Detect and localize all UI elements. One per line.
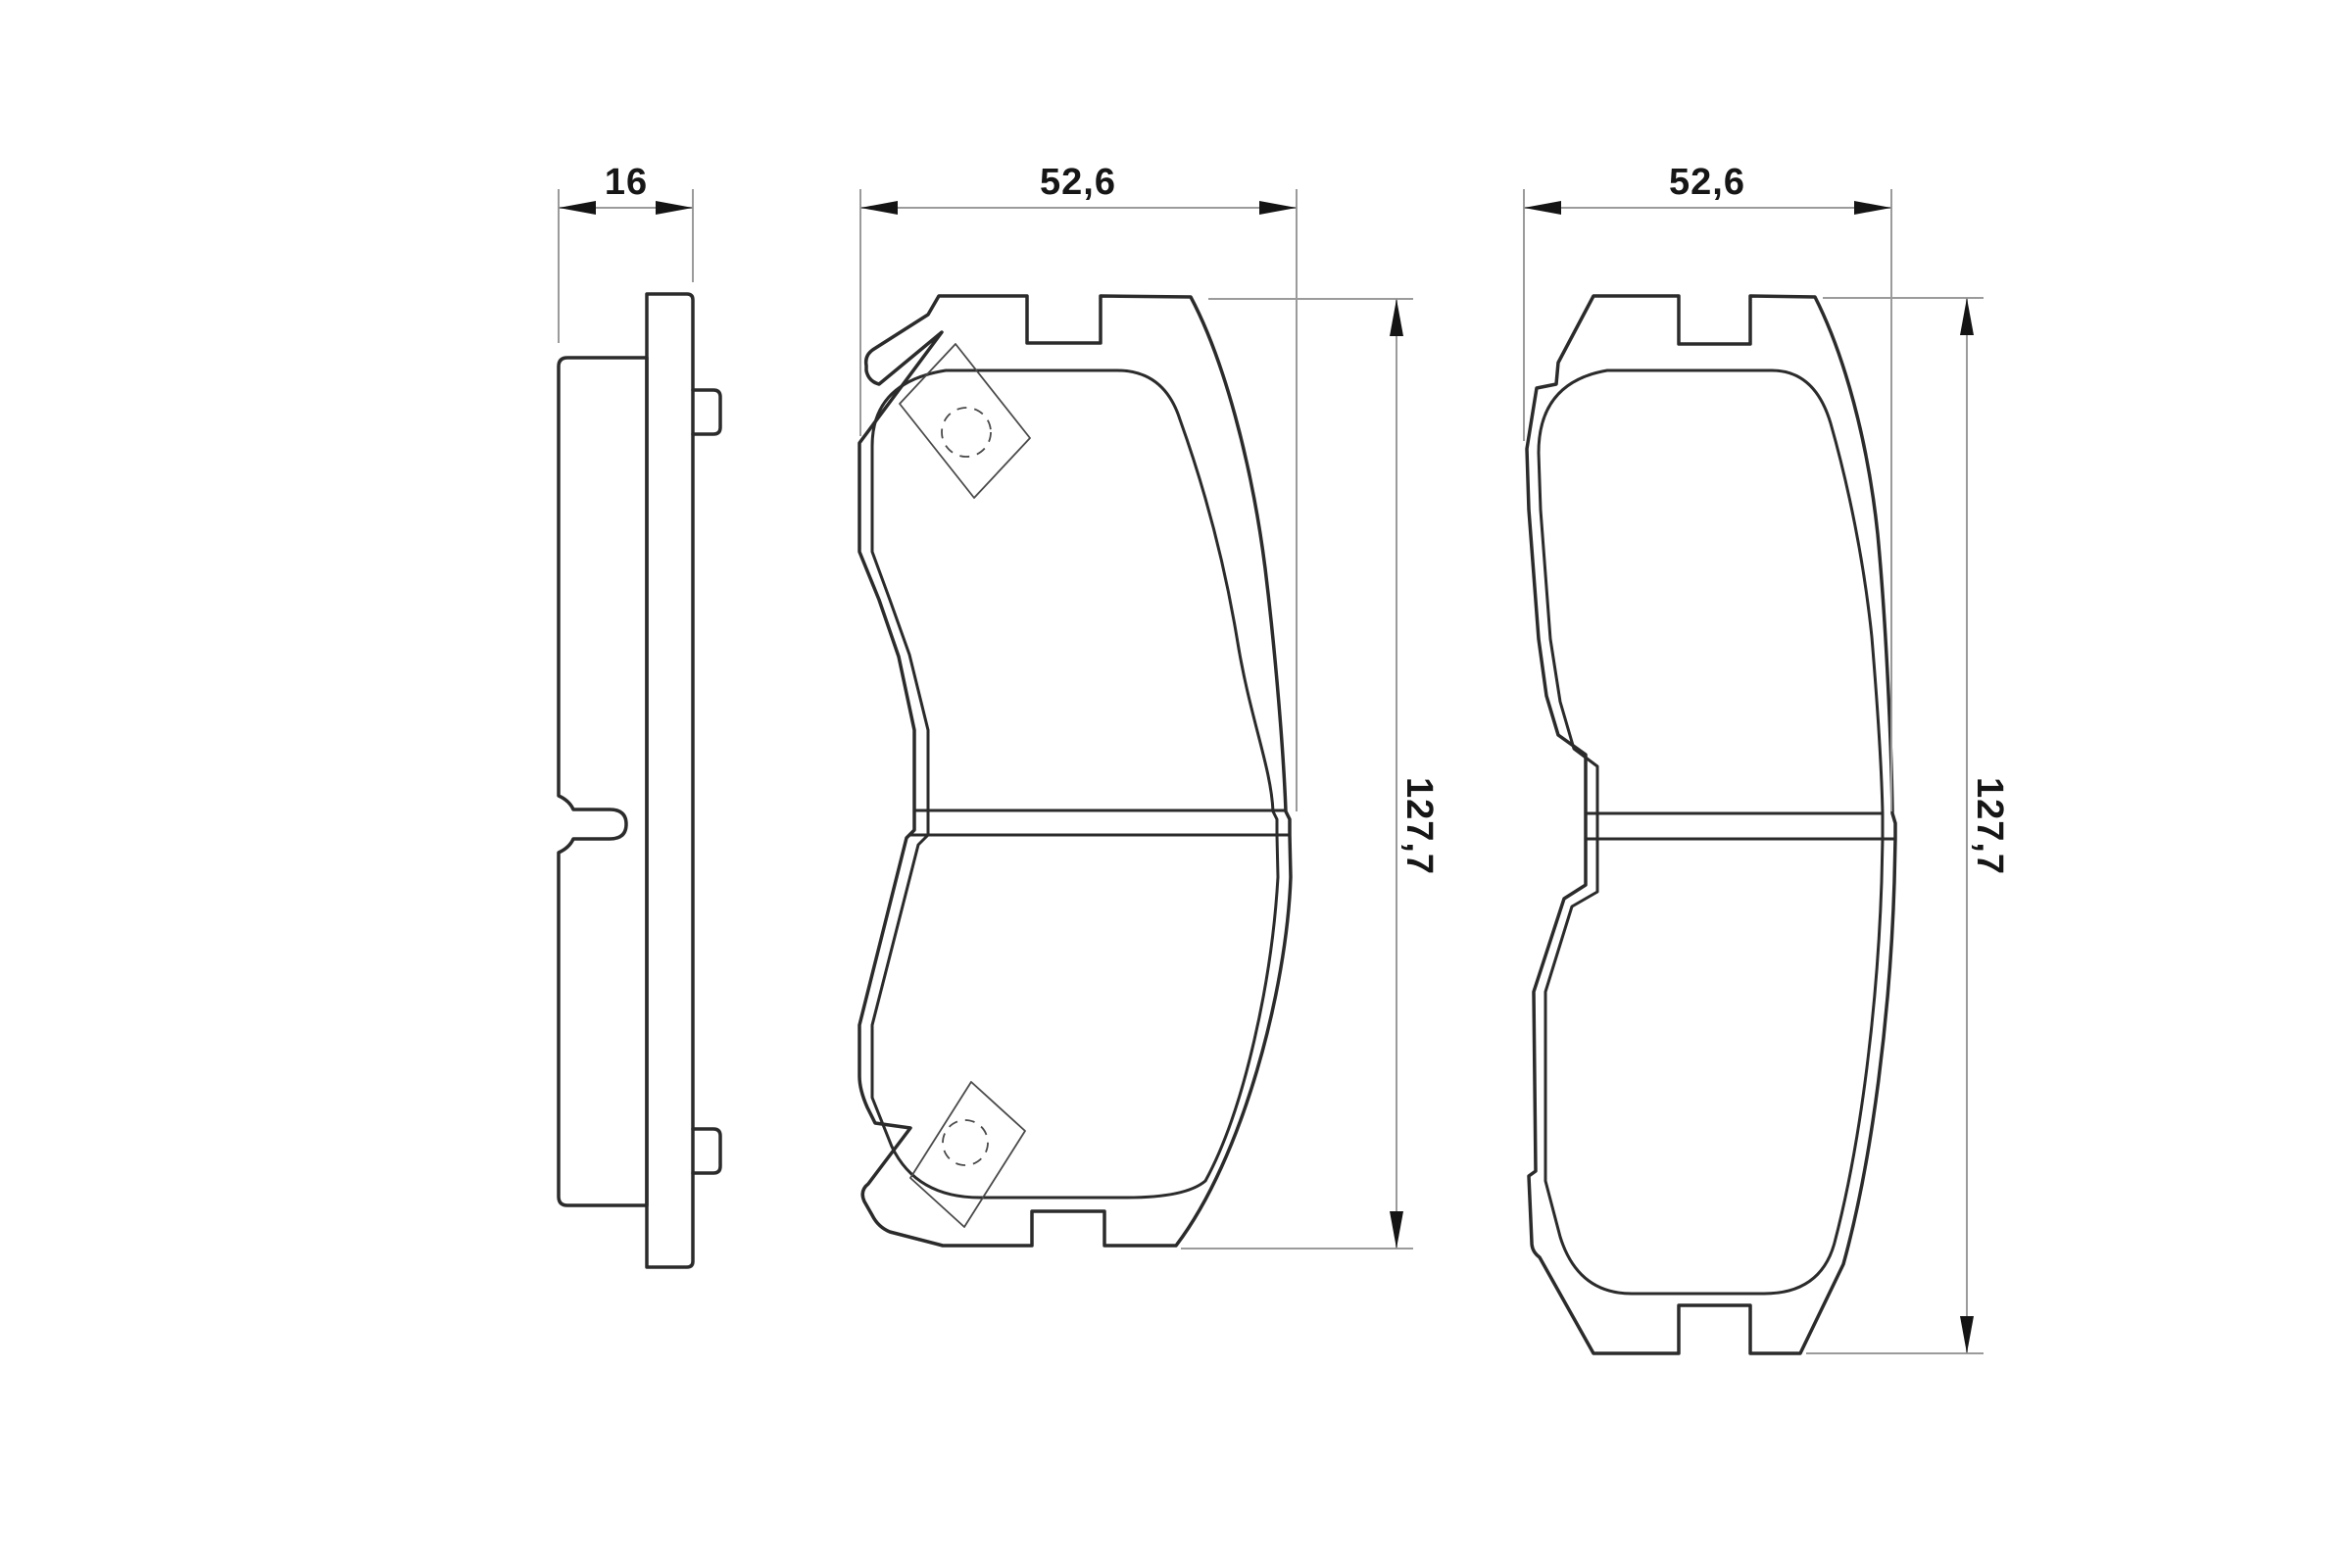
arrow-right-icon xyxy=(1854,201,1891,215)
right-pad-friction-outline xyxy=(1539,370,1883,1294)
left-pad-friction-outline xyxy=(872,370,1278,1198)
arrow-down-icon xyxy=(1960,1316,1974,1353)
side-lower-nub xyxy=(693,1129,720,1173)
arrow-up-icon xyxy=(1960,298,1974,335)
left-pad-upper-hole xyxy=(942,408,991,457)
arrow-down-icon xyxy=(1390,1211,1403,1249)
arrow-left-icon xyxy=(559,201,596,215)
arrow-left-icon xyxy=(1524,201,1561,215)
arrow-right-icon xyxy=(656,201,693,215)
side-view: 16 xyxy=(559,162,720,1267)
side-backing-plate-outline xyxy=(647,294,693,1267)
right-pad-width-label: 52,6 xyxy=(1669,162,1745,203)
dimension-right-pad-height: 127,7 xyxy=(1806,298,2010,1353)
arrow-right-icon xyxy=(1259,201,1297,215)
front-view-left-pad: 52,6 127,7 xyxy=(859,162,1440,1249)
side-thickness-label: 16 xyxy=(605,162,648,203)
side-friction-outline xyxy=(559,358,647,1205)
front-view-right-pad: 52,6 127,7 xyxy=(1524,162,2010,1353)
dimension-left-pad-height: 127,7 xyxy=(1181,299,1440,1249)
left-pad-lower-hole xyxy=(943,1120,988,1165)
left-pad-width-label: 52,6 xyxy=(1040,162,1116,203)
brake-pad-drawing: 16 52,6 127 xyxy=(0,0,2352,1568)
dimension-side-thickness: 16 xyxy=(559,162,693,343)
left-pad-lower-clip xyxy=(910,1082,1025,1227)
dimension-left-pad-width: 52,6 xyxy=(860,162,1297,811)
side-upper-nub xyxy=(693,390,720,434)
arrow-up-icon xyxy=(1390,299,1403,336)
left-pad-plate-outline xyxy=(859,296,1291,1246)
left-pad-upper-clip xyxy=(900,344,1030,498)
arrow-left-icon xyxy=(860,201,898,215)
right-pad-height-label: 127,7 xyxy=(1969,777,2010,875)
technical-drawing-page: 16 52,6 127 xyxy=(0,0,2352,1568)
dimension-right-pad-width: 52,6 xyxy=(1524,162,1891,811)
left-pad-height-label: 127,7 xyxy=(1398,777,1440,875)
